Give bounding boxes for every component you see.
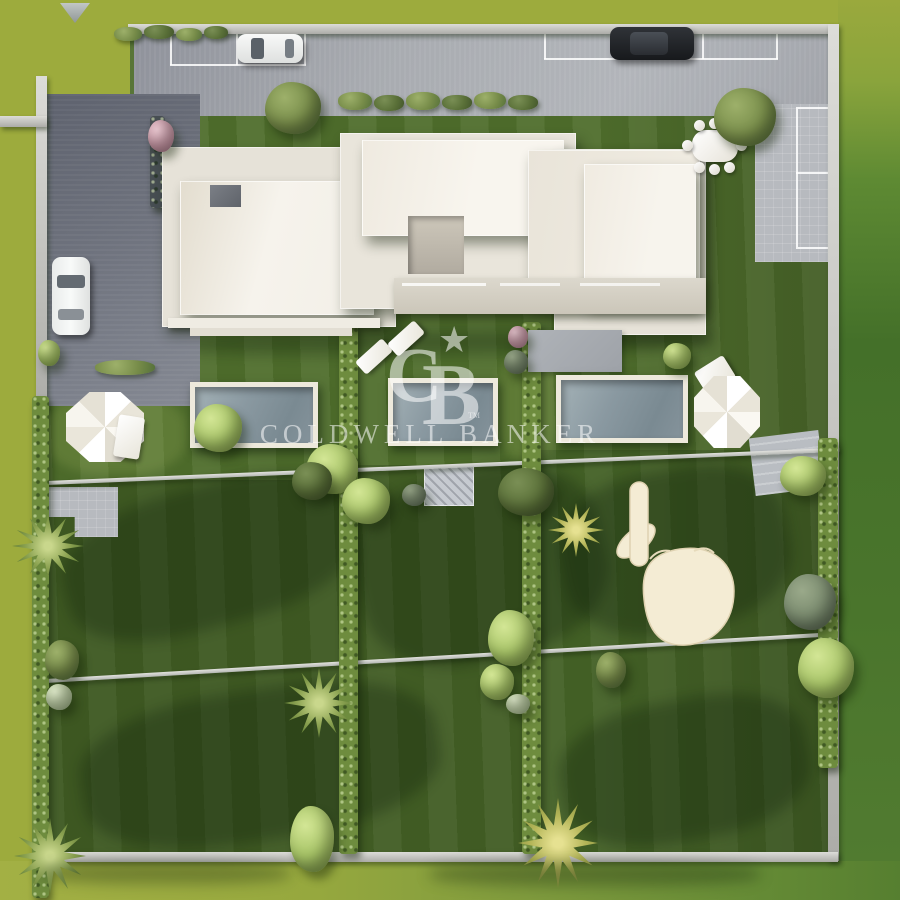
terrace-step: [402, 283, 486, 286]
skylight: [210, 185, 241, 207]
perimeter-wall-bottom: [38, 852, 838, 862]
flowering-bush: [148, 120, 174, 152]
terrace-step: [500, 283, 560, 286]
bush: [38, 340, 60, 366]
pool-right: [556, 375, 688, 443]
tree: [780, 456, 826, 496]
aerial-property-render: C B ★ TM COLDWELL BANKER: [0, 0, 900, 900]
bush: [480, 664, 514, 700]
flowering-bush: [508, 326, 528, 348]
patio-square: [424, 466, 474, 506]
shrub: [442, 95, 472, 110]
tree: [488, 610, 534, 666]
bush: [596, 652, 626, 688]
shrub: [374, 95, 404, 111]
bush-cluster: [498, 468, 554, 516]
bush: [663, 343, 691, 369]
umbrella-right: [694, 376, 760, 448]
perimeter-wall-stub: [0, 116, 47, 127]
shrub: [474, 92, 506, 109]
dining-chair: [682, 140, 693, 151]
tree: [714, 88, 776, 146]
car-roof: [630, 32, 668, 55]
bush: [46, 684, 72, 710]
shrub: [406, 92, 440, 110]
car-white-top: [237, 34, 303, 63]
parking-line: [304, 33, 306, 65]
plot-hedge-2: [522, 322, 541, 854]
outside-grass-right: [838, 0, 900, 900]
bush: [504, 350, 528, 374]
villa-courtyard: [408, 216, 464, 274]
tree: [265, 82, 321, 134]
plot-hedge-1: [339, 322, 358, 854]
car-rear-window: [285, 39, 294, 58]
parking-line: [170, 64, 306, 66]
car-windshield: [251, 38, 264, 59]
tree: [194, 404, 242, 452]
shrub: [176, 28, 202, 41]
bush: [45, 640, 79, 680]
wall-shadow: [40, 862, 290, 884]
bush: [292, 462, 332, 500]
villa-lower-ledge: [168, 318, 380, 328]
shrub: [204, 26, 228, 39]
boundary-hedge-left: [32, 396, 49, 898]
villa-side-patio: [528, 330, 622, 372]
wall-shadow: [430, 862, 760, 886]
tree: [342, 478, 390, 524]
shrub: [508, 95, 538, 110]
dining-chair: [694, 120, 705, 131]
dining-chair: [724, 162, 735, 173]
bush: [402, 484, 426, 506]
parking-line: [170, 33, 172, 65]
bush: [290, 806, 334, 872]
dining-chair: [709, 164, 720, 175]
perimeter-wall-top: [128, 24, 834, 34]
bush: [506, 694, 530, 714]
dining-chair: [694, 162, 705, 173]
pointing-hand-icon: [614, 479, 742, 654]
shrub: [338, 92, 372, 110]
car-rear-window: [58, 309, 84, 320]
car-white-left: [52, 257, 90, 335]
parking-line: [796, 172, 832, 174]
villa-lower-ledge: [190, 328, 352, 336]
triangle-marker-icon: [60, 3, 90, 23]
bush: [784, 574, 836, 630]
shrub: [114, 27, 142, 41]
pool-middle: [388, 378, 498, 446]
bush: [798, 638, 854, 698]
shrub: [144, 25, 174, 39]
car-black-top: [610, 27, 694, 60]
terrace-step: [580, 283, 660, 286]
car-windshield: [57, 275, 85, 288]
shrub: [95, 360, 155, 375]
